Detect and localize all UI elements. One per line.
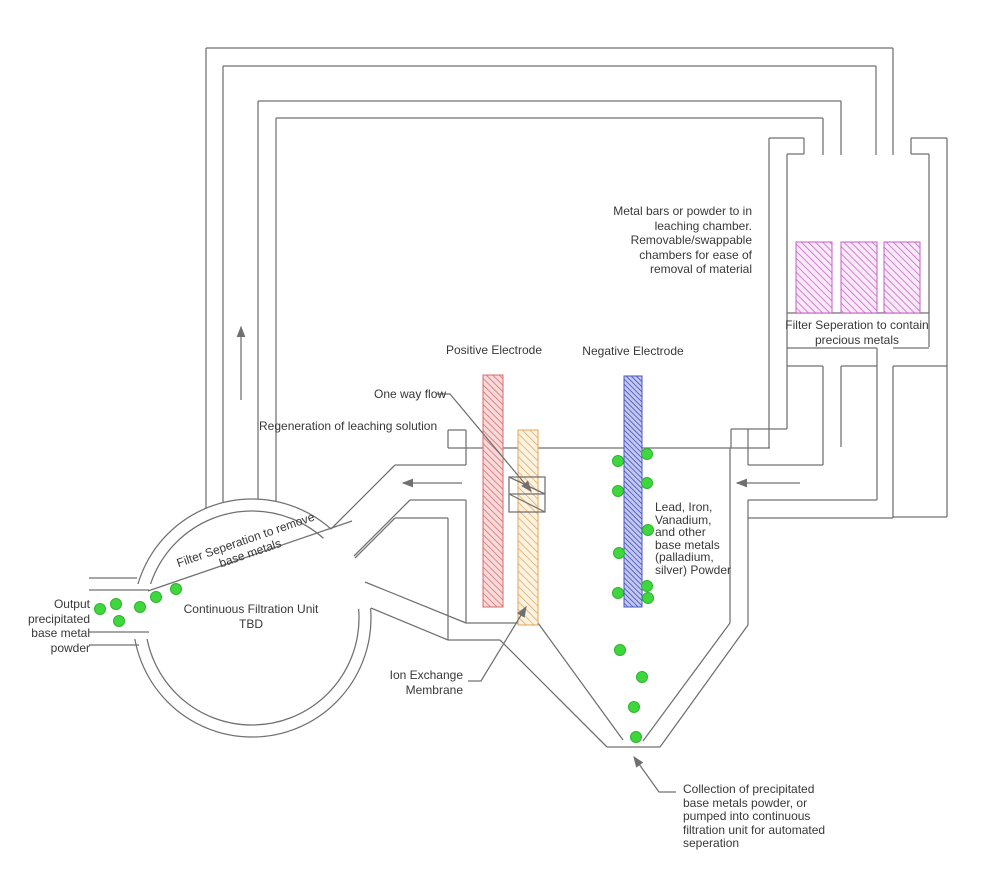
metal-bar-2	[841, 242, 877, 313]
metal-bar-3	[884, 242, 920, 313]
positive-electrode-bar	[483, 375, 503, 607]
negative-electrode-label: Negative Electrode	[582, 344, 683, 359]
collection-funnel	[500, 623, 748, 747]
powder-particle	[135, 602, 146, 613]
one-way-flow-label: One way flow	[374, 387, 446, 402]
powder-particle	[637, 672, 648, 683]
output-powder-label: Output precipitated base metal powder	[28, 597, 90, 655]
powder-particle	[111, 599, 122, 610]
recirculation-loop-piping	[206, 48, 893, 508]
powder-dots	[95, 449, 654, 743]
powder-particle	[629, 702, 640, 713]
negative-electrode-bar	[624, 376, 642, 607]
powder-particle	[613, 588, 624, 599]
continuous-filtration-label: Continuous Filtration Unit TBD	[184, 602, 319, 631]
powder-particle	[114, 616, 125, 627]
process-diagram: Metal bars or powder to in leaching cham…	[0, 0, 1002, 895]
ion-exchange-label: Ion Exchange Membrane	[390, 668, 463, 697]
powder-particle	[615, 645, 626, 656]
duct-opening	[321, 526, 375, 609]
powder-particle	[614, 548, 625, 559]
powder-particle	[643, 593, 654, 604]
powder-particle	[642, 478, 653, 489]
metal-bar-1	[796, 242, 832, 313]
powder-particle	[642, 581, 653, 592]
metal-bars-note: Metal bars or powder to in leaching cham…	[613, 204, 752, 277]
diagram-canvas	[0, 0, 1002, 895]
ion-exchange-membrane-bar	[518, 430, 538, 625]
powder-particle	[631, 732, 642, 743]
filter-contain-label: Filter Seperation to contain precious me…	[785, 318, 928, 347]
powder-particle	[642, 449, 653, 460]
regeneration-label: Regeneration of leaching solution	[259, 419, 437, 434]
powder-particle	[613, 456, 624, 467]
positive-electrode-label: Positive Electrode	[446, 343, 542, 358]
powder-particle	[171, 584, 182, 595]
powder-particle	[151, 592, 162, 603]
collection-note-label: Collection of precipitated base metals p…	[683, 783, 825, 851]
base-metals-powder-label: Lead, Iron, Vanadium, and other base met…	[655, 501, 731, 577]
powder-particle	[95, 604, 106, 615]
powder-particle	[613, 486, 624, 497]
ion-exchange-leader	[468, 607, 526, 681]
powder-particle	[643, 525, 654, 536]
collection-leader	[634, 757, 676, 792]
